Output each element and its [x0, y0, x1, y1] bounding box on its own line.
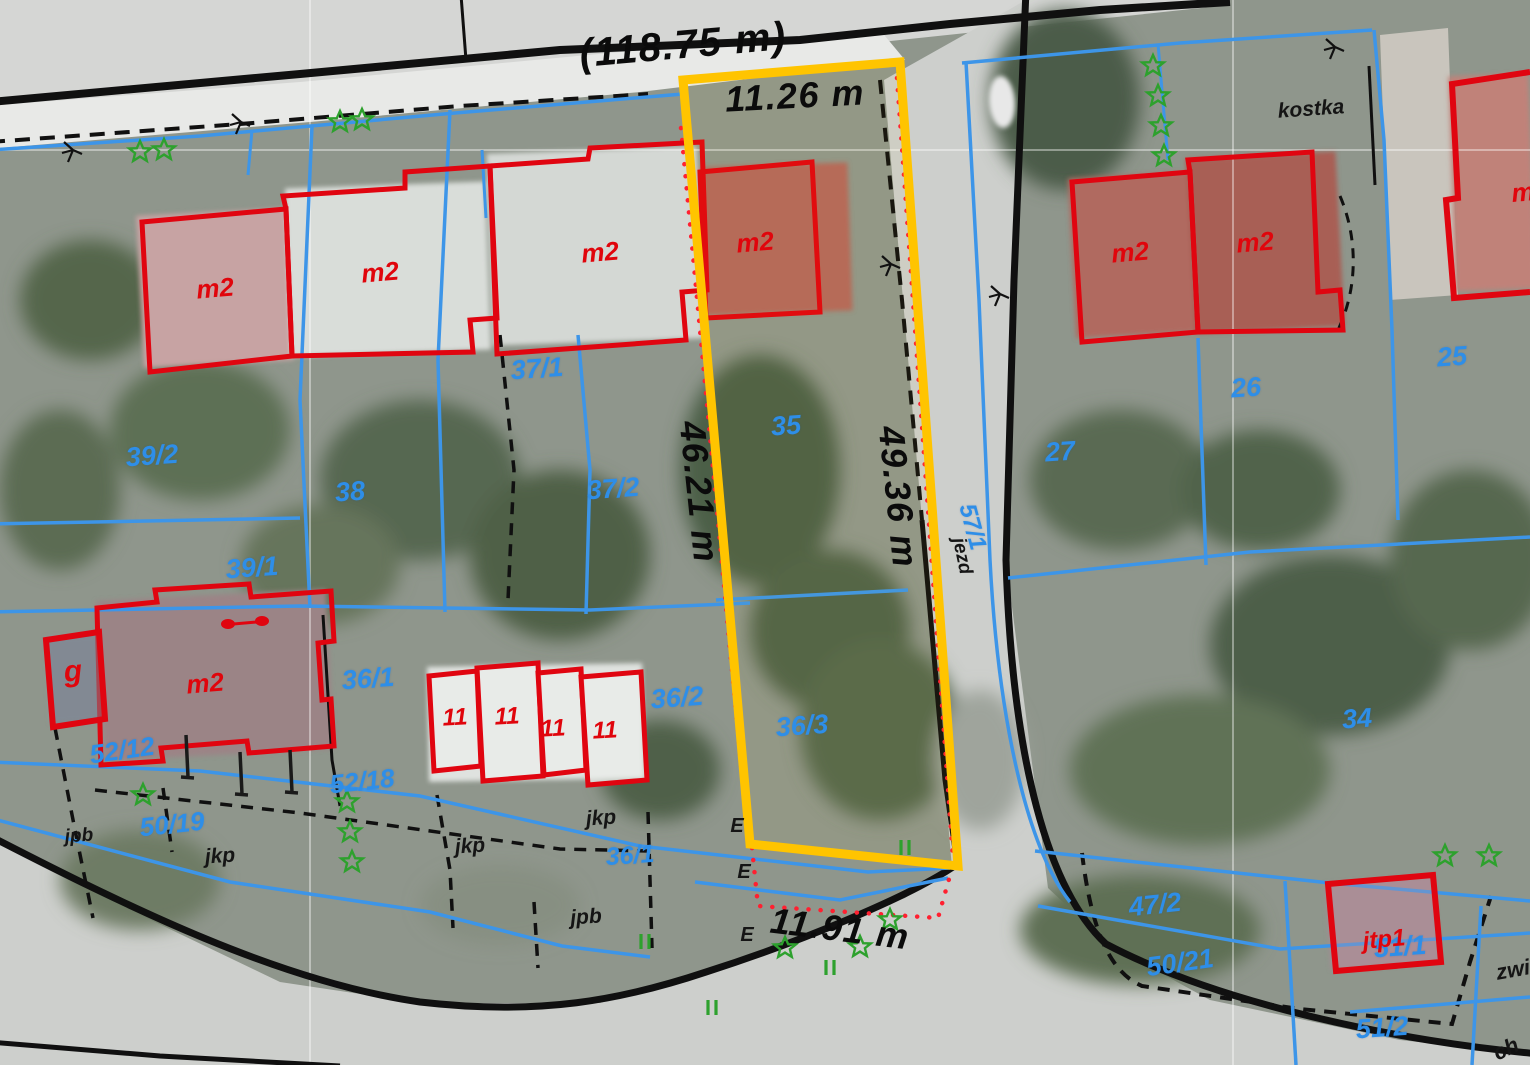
- map-label-parcel-25: 25: [1436, 342, 1468, 371]
- map-label-surface-jkp-1: jkp: [454, 834, 486, 857]
- map-label-parcel-26: 26: [1230, 373, 1262, 402]
- map-labels-layer: (118.75 m)11.26 m46.21 m49.36 m11.91 m39…: [0, 0, 1530, 1065]
- map-label-parcel-36-1-b: 36/1: [605, 842, 655, 870]
- map-label-surface-jkp-3: jkp: [204, 844, 236, 867]
- map-label-building-jtp1: jtp1: [1362, 926, 1407, 954]
- map-label-dim-rear: 11.91 m: [768, 903, 911, 956]
- map-label-parcel-52-18: 52/18: [328, 765, 395, 798]
- map-label-surface-zwi: zwi: [1494, 956, 1530, 984]
- map-label-building-11-1: 11: [442, 705, 468, 730]
- map-label-mark-e-1: E: [730, 816, 743, 836]
- map-label-frontage-total: (118.75 m): [578, 16, 788, 74]
- map-label-dim-left-side: 46.21 m: [674, 419, 725, 565]
- map-label-parcel-38: 38: [334, 477, 366, 506]
- map-label-building-m2-3: m2: [580, 237, 620, 266]
- map-label-dim-front: 11.26 m: [724, 74, 866, 117]
- map-label-building-m2-1: m2: [195, 273, 235, 302]
- map-label-parcel-50-19: 50/19: [138, 808, 205, 841]
- map-label-parcel-35: 35: [770, 411, 802, 440]
- map-label-surface-jpb-2: jpb: [64, 826, 94, 847]
- map-label-building-m2-4: m2: [735, 227, 775, 256]
- map-label-surface-kostka: kostka: [1277, 96, 1345, 122]
- map-label-building-11-3: 11: [540, 716, 566, 741]
- map-label-mark-e-2: E: [737, 862, 750, 882]
- map-label-parcel-34: 34: [1341, 704, 1373, 733]
- map-label-parcel-47-2: 47/2: [1127, 889, 1182, 921]
- map-label-parcel-50-21: 50/21: [1145, 945, 1216, 981]
- map-label-parcel-52-12: 52/12: [88, 733, 156, 768]
- map-label-building-m2-5: m2: [1110, 237, 1150, 266]
- map-label-surface-ch: ch: [1490, 1034, 1523, 1065]
- map-label-surface-jkp-2: jkp: [585, 806, 617, 829]
- map-label-dim-right-side: 49.36 m: [873, 424, 924, 570]
- map-label-building-11-4: 11: [592, 718, 618, 743]
- map-label-surface-jpb-1: jpb: [570, 905, 603, 928]
- map-label-parcel-39-2: 39/2: [125, 441, 179, 472]
- map-label-parcel-39-1: 39/1: [225, 553, 279, 584]
- map-label-building-m2-7: m2: [185, 668, 225, 697]
- map-label-building-m-partial: m: [1510, 178, 1530, 206]
- map-label-parcel-37-1: 37/1: [510, 354, 564, 385]
- map-label-parcel-36-2: 36/2: [650, 683, 704, 714]
- map-label-parcel-36-1: 36/1: [341, 664, 395, 695]
- map-label-building-g: g: [63, 656, 84, 687]
- map-label-mark-e-3: E: [740, 925, 753, 945]
- map-label-parcel-36-3: 36/3: [775, 711, 829, 742]
- map-label-parcel-27: 27: [1044, 437, 1076, 466]
- map-label-building-11-2: 11: [494, 704, 520, 729]
- map-label-building-m2-2: m2: [360, 257, 400, 286]
- map-label-parcel-37-2: 37/2: [586, 474, 640, 505]
- map-label-parcel-51-2: 51/2: [1355, 1013, 1409, 1044]
- cadastral-map-canvas[interactable]: (118.75 m)11.26 m46.21 m49.36 m11.91 m39…: [0, 0, 1530, 1065]
- map-label-building-m2-6: m2: [1235, 227, 1275, 256]
